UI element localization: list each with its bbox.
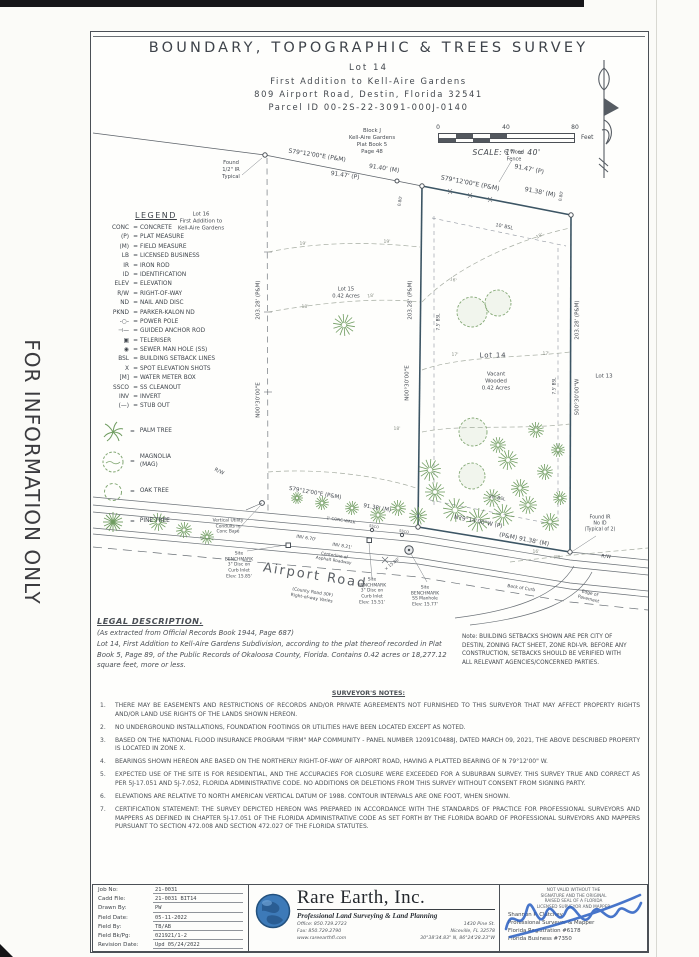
legend-abbr: ⊣—: [101, 327, 131, 336]
legend-heading: LEGEND: [135, 211, 273, 220]
legend-abbr: IR: [101, 262, 131, 271]
equals-sign: =: [130, 459, 135, 465]
note-text: BEARINGS SHOWN HEREON ARE BASED ON THE N…: [115, 758, 640, 767]
footer-info-label: Job No:: [98, 888, 153, 894]
note-text: ELEVATIONS ARE RELATIVE TO NORTH AMERICA…: [115, 793, 640, 802]
legend-desc: IRON ROD: [140, 262, 273, 271]
surveyor-note: 4.BEARINGS SHOWN HEREON ARE BASED ON THE…: [100, 758, 640, 767]
legend-desc: TELERISER: [140, 337, 273, 346]
legend-item: BSL=BUILDING SETBACK LINES: [101, 355, 273, 364]
company-cell: Rare Earth, Inc. Professional Land Surve…: [248, 885, 500, 952]
equals-sign: =: [131, 393, 140, 402]
equals-sign: =: [131, 243, 140, 252]
legend-abbr: ELEV: [101, 280, 131, 289]
equals-sign: =: [131, 384, 140, 393]
survey-title: BOUNDARY, TOPOGRAPHIC & TREES SURVEY: [90, 40, 647, 56]
legend-desc: NAIL AND DISC: [140, 299, 273, 308]
company-contact-right: 1430 Pine St.Niceville, FL 3257830°38'34…: [420, 922, 495, 942]
note-text: CERTIFICATION STATEMENT: THE SURVEY DEPI…: [115, 806, 640, 832]
note-text: NO UNDERGROUND INSTALLATIONS, FOUNDATION…: [115, 724, 640, 733]
equals-sign: =: [131, 271, 140, 280]
legend-desc: IDENTIFICATION: [140, 271, 273, 280]
legend-desc: SS CLEANOUT: [140, 384, 273, 393]
footer-info-value: PW: [153, 906, 243, 912]
footer-info-row: Cadd File:21-0031 BIT14: [98, 897, 243, 903]
equals-sign: =: [131, 327, 140, 336]
globe-logo-icon: [254, 892, 292, 930]
oak-tree-icon: [101, 480, 125, 504]
scale-tick-40: 40: [502, 124, 510, 131]
legend: LEGEND CONC=CONCRETE(P)=PLAT MEASURE(M)=…: [101, 211, 273, 539]
scale-tick-0: 0: [436, 124, 440, 131]
wood-fence-marks: [448, 189, 492, 202]
lot-subtitle: Lot 14: [90, 63, 647, 73]
equals-sign: =: [131, 233, 140, 242]
legend-abbr: ND: [101, 299, 131, 308]
surveyor-note: 6.ELEVATIONS ARE RELATIVE TO NORTH AMERI…: [100, 793, 640, 802]
legend-item: -○-=POWER POLE: [101, 318, 273, 327]
subdivision-subtitle: First Addition to Kell-Aire Gardens: [90, 76, 647, 86]
note-number: 6.: [100, 793, 112, 802]
equals-sign: =: [131, 402, 140, 411]
equals-sign: =: [130, 489, 135, 495]
legend-desc: CONCRETE: [140, 224, 273, 233]
equals-sign: =: [131, 252, 140, 261]
legend-tree-list: = PALM TREE = MAGNOLIA (MAG) = OAK TREE: [101, 419, 273, 535]
legend-item: ⊣—=GUIDED ANCHOR ROD: [101, 327, 273, 336]
footer-info-value: Upd 05/24/2022: [153, 943, 243, 949]
legend-item: (M)=FIELD MEASURE: [101, 243, 273, 252]
equals-sign: =: [131, 374, 140, 383]
legend-item-magnolia: = MAGNOLIA (MAG): [101, 449, 273, 475]
company-name: Rare Earth, Inc.: [297, 887, 495, 910]
note-number: 3.: [100, 737, 112, 754]
legend-item: (—)=STUB OUT: [101, 402, 273, 411]
title-block-footer: Job No:21-0031Cadd File:21-0031 BIT14Dra…: [92, 884, 648, 952]
legal-body-text: Lot 14, First Addition to Kell-Aire Gard…: [97, 639, 459, 671]
legend-abbr: SSCO: [101, 384, 131, 393]
footer-info-row: Job No:21-0031: [98, 888, 243, 894]
magnolia-tree-icon: [101, 450, 125, 474]
legend-abbr: R/W: [101, 290, 131, 299]
company-contact-line: Office: 850.729.2723: [297, 922, 347, 929]
equals-sign: =: [131, 346, 140, 355]
surveyor-note: 5.EXPECTED USE OF THE SITE IS FOR RESIDE…: [100, 771, 640, 788]
legend-item-list: CONC=CONCRETE(P)=PLAT MEASURE(M)=FIELD M…: [101, 224, 273, 412]
surveyor-signature: [500, 885, 645, 949]
legend-item-pine: = PINE TREE: [101, 509, 273, 535]
legend-item: SSCO=SS CLEANOUT: [101, 384, 273, 393]
scale-tick-80: 80: [571, 124, 579, 131]
footer-info-value: 021921/1-2: [153, 934, 243, 940]
legend-item: CONC=CONCRETE: [101, 224, 273, 233]
legal-description-heading: LEGAL DESCRIPTION.: [97, 616, 459, 626]
legend-abbr: ID: [101, 271, 131, 280]
note-number: 5.: [100, 771, 112, 788]
scanned-survey-page: FOR INFORMATION ONLY: [0, 0, 699, 957]
legend-item: (P)=PLAT MEASURE: [101, 233, 273, 242]
legend-desc: PARKER-KALON ND: [140, 309, 273, 318]
legend-item: LB=LICENSED BUSINESS: [101, 252, 273, 261]
legend-abbr: (M): [101, 243, 131, 252]
equals-sign: =: [131, 355, 140, 364]
footer-info-value: TB/AB: [153, 925, 243, 931]
scale-unit-label: Feet: [581, 135, 593, 141]
job-info-cell: Job No:21-0031Cadd File:21-0031 BIT14Dra…: [93, 885, 248, 952]
surveyor-note: 1.THERE MAY BE EASEMENTS AND RESTRICTION…: [100, 702, 640, 719]
surveyor-notes-list: 1.THERE MAY BE EASEMENTS AND RESTRICTION…: [100, 702, 640, 836]
legend-item: [M]=WATER METER BOX: [101, 374, 273, 383]
legend-abbr: INV: [101, 393, 131, 402]
footer-info-label: Revision Date:: [98, 943, 153, 949]
legend-item: ND=NAIL AND DISC: [101, 299, 273, 308]
company-contact-line: Fax: 850.729.2790: [297, 929, 347, 936]
company-contact-line: 1430 Pine St.: [420, 922, 495, 929]
legend-abbr: ▣: [101, 337, 131, 346]
equals-sign: =: [130, 429, 135, 435]
footer-info-row: Field By:TB/AB: [98, 925, 243, 931]
legend-abbr: X: [101, 365, 131, 374]
surveyor-note: 2.NO UNDERGROUND INSTALLATIONS, FOUNDATI…: [100, 724, 640, 733]
legend-abbr: BSL: [101, 355, 131, 364]
equals-sign: =: [131, 262, 140, 271]
legend-abbr: (P): [101, 233, 131, 242]
equals-sign: =: [131, 224, 140, 233]
legend-item: ◉=SEWER MAN HOLE (SS): [101, 346, 273, 355]
equals-sign: =: [131, 318, 140, 327]
legend-item: ELEV=ELEVATION: [101, 280, 273, 289]
legend-desc: ELEVATION: [140, 280, 273, 289]
footer-info-value: 05-11-2022: [153, 916, 243, 922]
scale-ratio-label: SCALE: 1" = 40': [438, 148, 575, 157]
footer-info-row: Field Date:05-11-2022: [98, 916, 243, 922]
parcel-id-subtitle: Parcel ID 00-2S-22-3091-000J-0140: [90, 102, 647, 112]
surveyor-note: 7.CERTIFICATION STATEMENT: THE SURVEY DE…: [100, 806, 640, 832]
scale-bar-graphic: [438, 133, 575, 143]
legal-source-line: (As extracted from Official Records Book…: [97, 629, 459, 637]
legend-desc: PLAT MEASURE: [140, 233, 273, 242]
legend-item: R/W=RIGHT-OF-WAY: [101, 290, 273, 299]
footer-info-row: Revision Date:Upd 05/24/2022: [98, 943, 243, 949]
legend-desc: STUB OUT: [140, 402, 273, 411]
legend-desc: PALM TREE: [140, 428, 172, 436]
legend-desc: WATER METER BOX: [140, 374, 273, 383]
equals-sign: =: [131, 365, 140, 374]
legend-desc: POWER POLE: [140, 318, 273, 327]
note-number: 4.: [100, 758, 112, 767]
title-block: BOUNDARY, TOPOGRAPHIC & TREES SURVEY Lot…: [90, 40, 647, 115]
legend-item-palm: = PALM TREE: [101, 419, 273, 445]
legend-abbr: CONC: [101, 224, 131, 233]
note-number: 1.: [100, 702, 112, 719]
equals-sign: =: [131, 309, 140, 318]
legend-desc: FIELD MEASURE: [140, 243, 273, 252]
legend-item: PKND=PARKER-KALON ND: [101, 309, 273, 318]
legend-desc: OAK TREE: [140, 488, 169, 496]
job-info-rows: Job No:21-0031Cadd File:21-0031 BIT14Dra…: [93, 885, 248, 949]
company-contact-left: Office: 850.729.2723Fax: 850.729.2790www…: [297, 922, 347, 942]
legend-desc: MAGNOLIA (MAG): [140, 454, 171, 469]
legend-abbr: LB: [101, 252, 131, 261]
legend-desc: PINE TREE: [140, 518, 170, 526]
note-text: THERE MAY BE EASEMENTS AND RESTRICTIONS …: [115, 702, 640, 719]
equals-sign: =: [131, 299, 140, 308]
legend-item: X=SPOT ELEVATION SHOTS: [101, 365, 273, 374]
footer-info-label: Field Bk/Pg:: [98, 934, 153, 940]
setback-note: Note: BUILDING SETBACKS SHOWN ARE PER CI…: [462, 633, 632, 667]
legend-abbr: -○-: [101, 318, 131, 327]
footer-info-row: Field Bk/Pg:021921/1-2: [98, 934, 243, 940]
note-text: BASED ON THE NATIONAL FLOOD INSURANCE PR…: [115, 737, 640, 754]
company-contact-line: Niceville, FL 32578: [420, 929, 495, 936]
note-text: EXPECTED USE OF THE SITE IS FOR RESIDENT…: [115, 771, 640, 788]
footer-info-label: Field By:: [98, 925, 153, 931]
legend-item: INV=INVERT: [101, 393, 273, 402]
legend-abbr: ◉: [101, 346, 131, 355]
pine-tree-icon: [101, 510, 125, 534]
footer-info-label: Field Date:: [98, 916, 153, 922]
legend-abbr: [M]: [101, 374, 131, 383]
survey-monument-symbols: [246, 153, 573, 563]
legend-desc: SPOT ELEVATION SHOTS: [140, 365, 273, 374]
company-contact-line: 30°38'34.83" N, 86°24'28.23"W: [420, 936, 495, 943]
certification-cell: NOT VALID WITHOUT THESIGNATURE AND THE O…: [500, 885, 647, 952]
note-number: 7.: [100, 806, 112, 832]
equals-sign: =: [131, 280, 140, 289]
equals-sign: =: [130, 519, 135, 525]
footer-info-value: 21-0031: [153, 888, 243, 894]
legend-abbr: (—): [101, 402, 131, 411]
legend-item-oak: = OAK TREE: [101, 479, 273, 505]
legend-desc: RIGHT-OF-WAY: [140, 290, 273, 299]
legend-desc: INVERT: [140, 393, 273, 402]
legal-description-section: LEGAL DESCRIPTION. (As extracted from Of…: [97, 616, 459, 671]
legend-desc: LICENSED BUSINESS: [140, 252, 273, 261]
company-contact-line: www.rareearthfl.com: [297, 936, 347, 943]
legend-desc: BUILDING SETBACK LINES: [140, 355, 273, 364]
footer-info-label: Drawn By:: [98, 906, 153, 912]
footer-info-value: 21-0031 BIT14: [153, 897, 243, 903]
legend-desc: GUIDED ANCHOR ROD: [140, 327, 273, 336]
legend-desc: SEWER MAN HOLE (SS): [140, 346, 273, 355]
company-tagline: Professional Land Surveying & Land Plann…: [297, 912, 495, 920]
palm-tree-icon: [101, 420, 125, 444]
legend-item: ▣=TELERISER: [101, 337, 273, 346]
equals-sign: =: [131, 337, 140, 346]
legend-abbr: PKND: [101, 309, 131, 318]
footer-info-label: Cadd File:: [98, 897, 153, 903]
surveyor-note: 3.BASED ON THE NATIONAL FLOOD INSURANCE …: [100, 737, 640, 754]
equals-sign: =: [131, 290, 140, 299]
legend-item: IR=IRON ROD: [101, 262, 273, 271]
surveyor-notes-heading: SURVEYOR'S NOTES:: [90, 690, 647, 697]
footer-info-row: Drawn By:PW: [98, 906, 243, 912]
legend-item: ID=IDENTIFICATION: [101, 271, 273, 280]
note-number: 2.: [100, 724, 112, 733]
address-subtitle: 809 Airport Road, Destin, Florida 32541: [90, 89, 647, 99]
